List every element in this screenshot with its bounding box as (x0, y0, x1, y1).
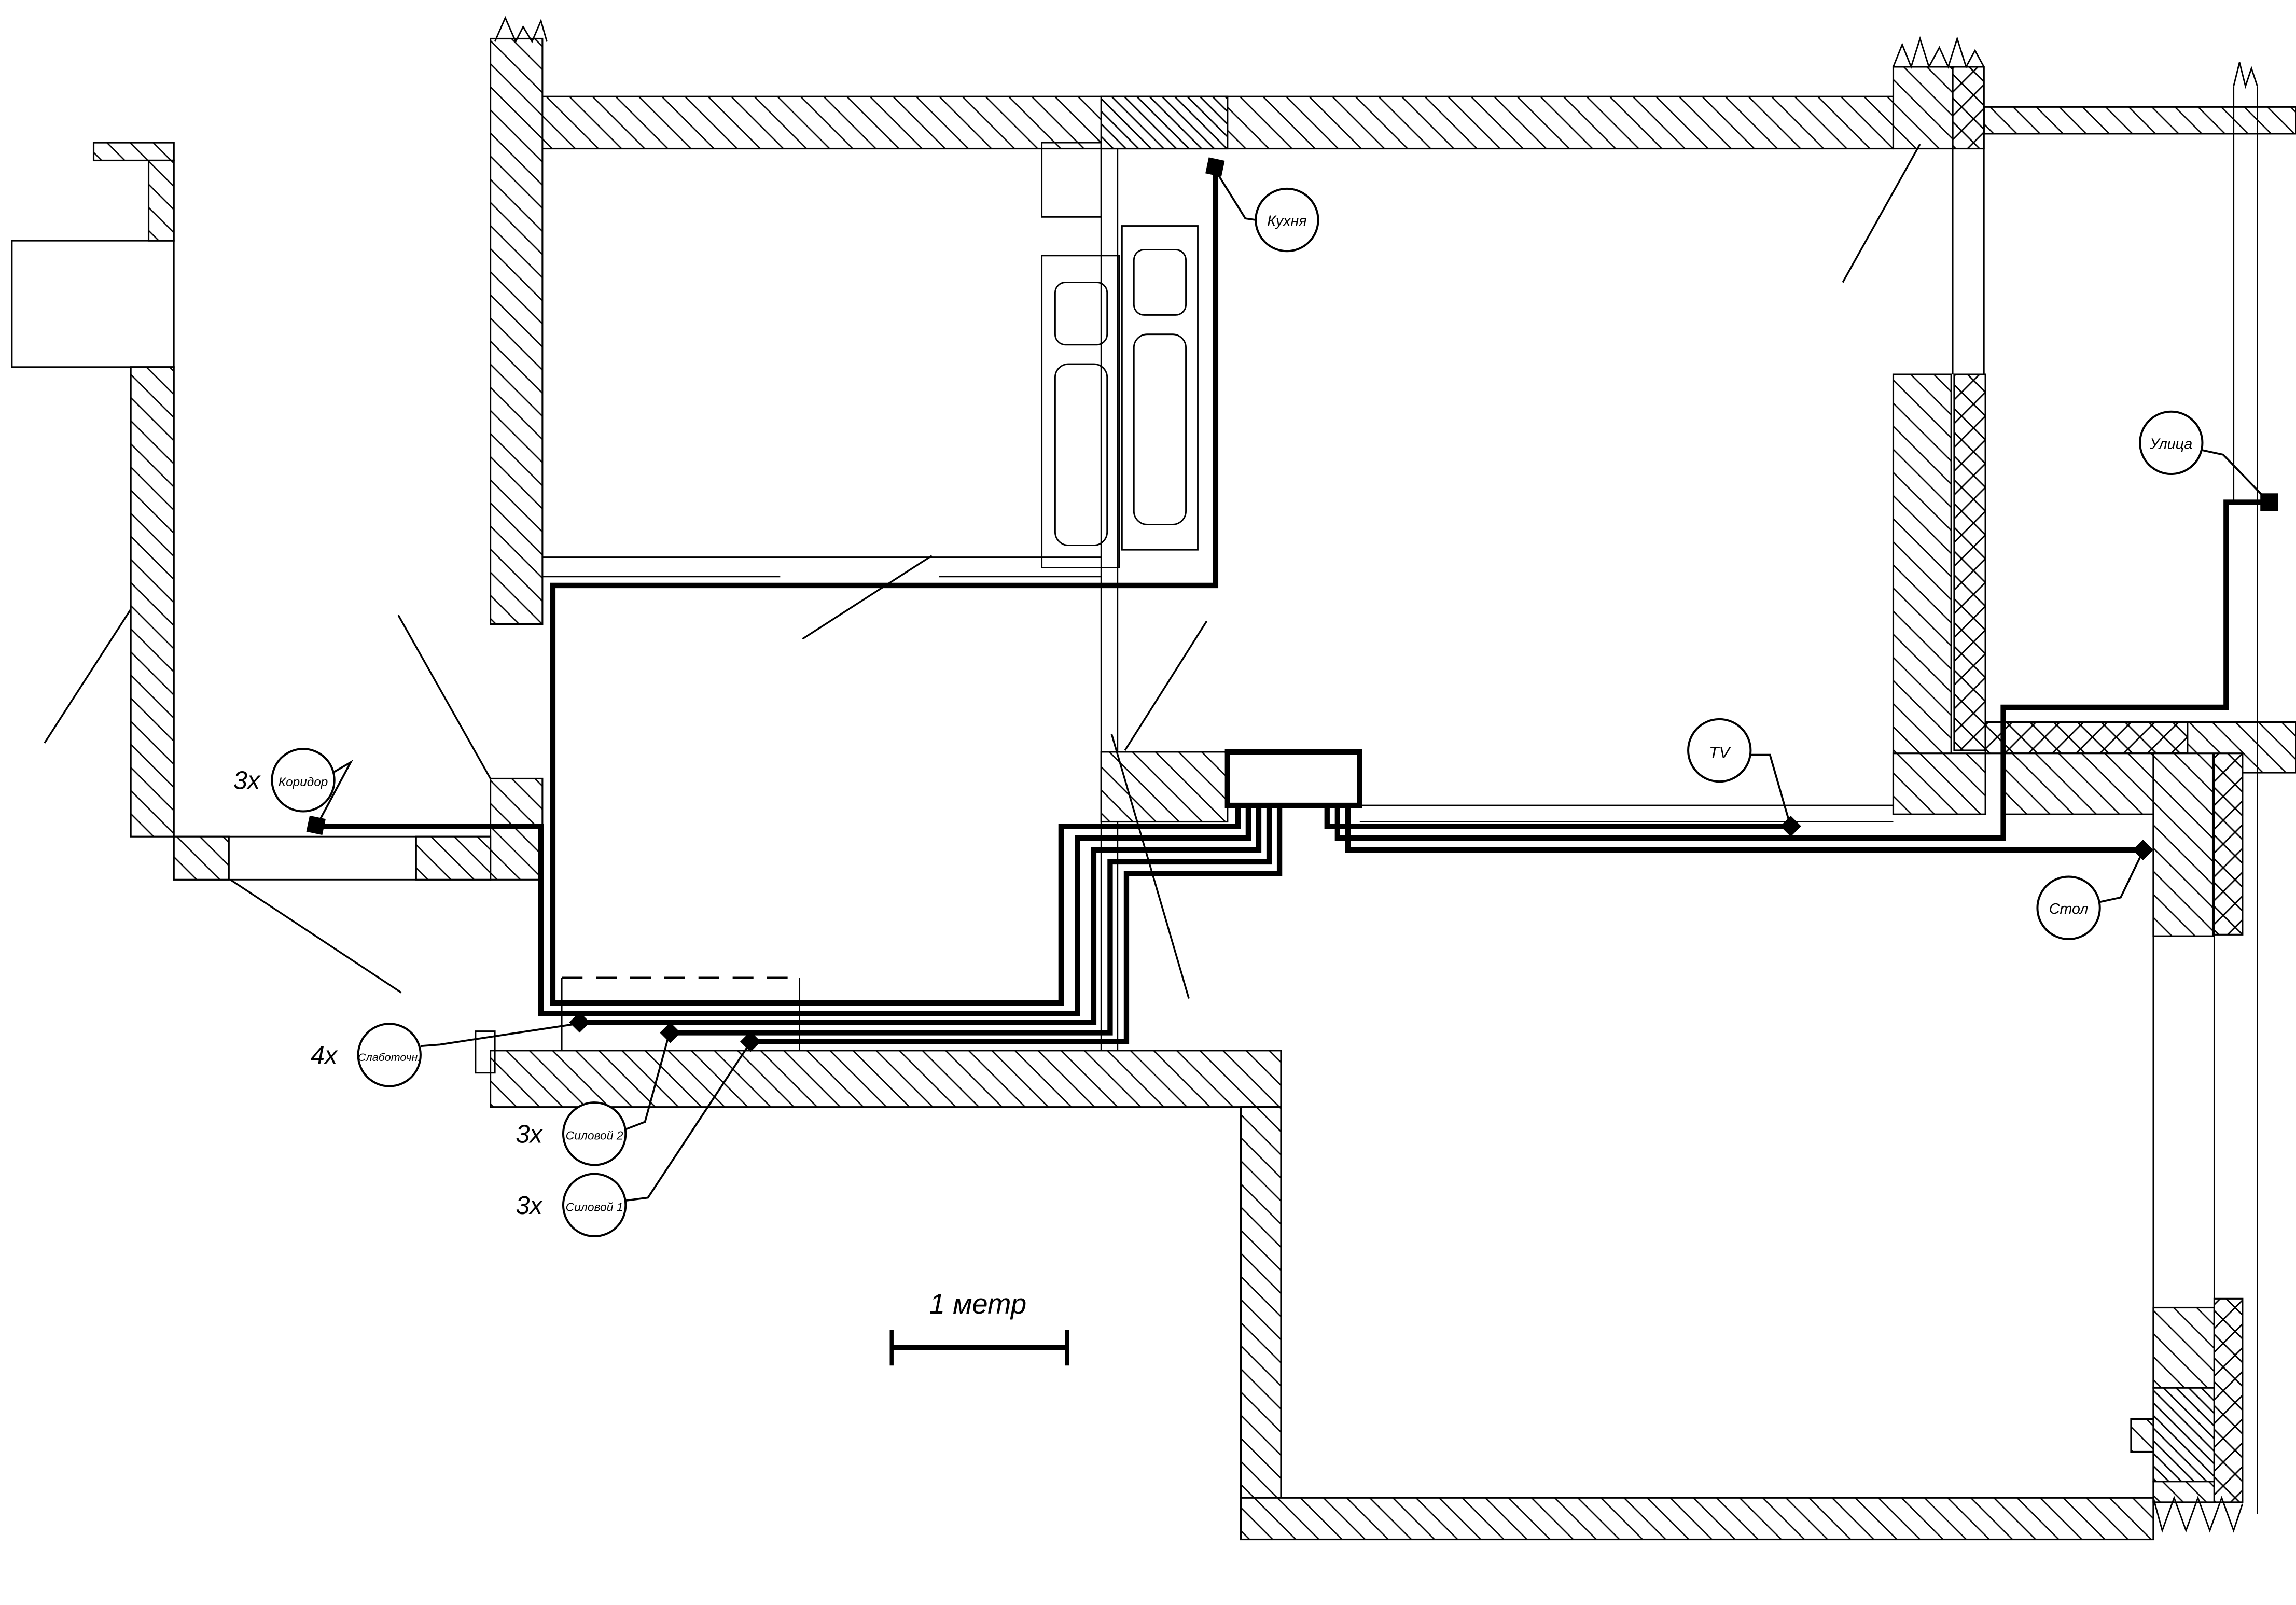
wall-bottom-left-band (491, 1051, 1281, 1107)
endpoint-kitchen (1205, 157, 1224, 176)
corridor-wall-right (416, 836, 490, 880)
junction-box (1228, 752, 1360, 805)
corridor-wall-left (174, 836, 229, 880)
callout-label-kitchen: Кухня (1267, 213, 1306, 230)
balcony-pier-insulation (1953, 67, 1984, 149)
balcony-pier (1893, 67, 1953, 149)
wall-bottom-band (1241, 1498, 2153, 1539)
callout-label-tv: TV (1709, 743, 1731, 761)
multiplier-low-current: 4x (311, 1042, 338, 1070)
entrance-wall-left (131, 367, 174, 836)
entrance-wall-leg (149, 160, 174, 241)
right-wall-block (2153, 1308, 2214, 1388)
multiplier-power1: 3x (516, 1192, 543, 1220)
wall-top-band-right (1984, 107, 2296, 134)
callout-label-power1: Силовой 1 (566, 1200, 623, 1213)
multiplier-power2: 3x (516, 1120, 543, 1148)
right-room-bottom-wall-left (1893, 753, 1985, 814)
wall-kitchen-pier (1101, 96, 1228, 148)
right-outer-wall (2153, 753, 2213, 936)
wall-left-lower (491, 778, 542, 880)
windowsill-nub (2131, 1419, 2153, 1452)
right-wall-block (2153, 1388, 2214, 1482)
right-outer-wall-insulation (2214, 753, 2242, 935)
callout-label-low-current: Слаботочн. (358, 1051, 421, 1064)
callout-label-corridor: Коридор (279, 775, 328, 789)
right-wall-insulation-low (2214, 1299, 2242, 1502)
balcony-wall (1893, 374, 1951, 814)
callout-label-table: Стол (2049, 901, 2089, 917)
right-wall-block (2153, 1482, 2214, 1502)
callout-label-power2: Силовой 2 (566, 1129, 623, 1142)
endpoint-corridor (307, 816, 326, 835)
scale-bar-label: 1 метр (929, 1288, 1026, 1320)
wall-left-upper (491, 38, 542, 624)
entrance-wall-top (94, 143, 174, 160)
floor-plan: Кухня Коридор 3x Слаботочн. 4x Силовой 2… (0, 0, 2296, 1605)
multiplier-corridor: 3x (233, 767, 261, 795)
balcony-wall-insulation (1954, 374, 1985, 750)
wall-mid-vertical-band (1241, 1107, 1281, 1498)
callout-label-street: Улица (2149, 436, 2192, 452)
